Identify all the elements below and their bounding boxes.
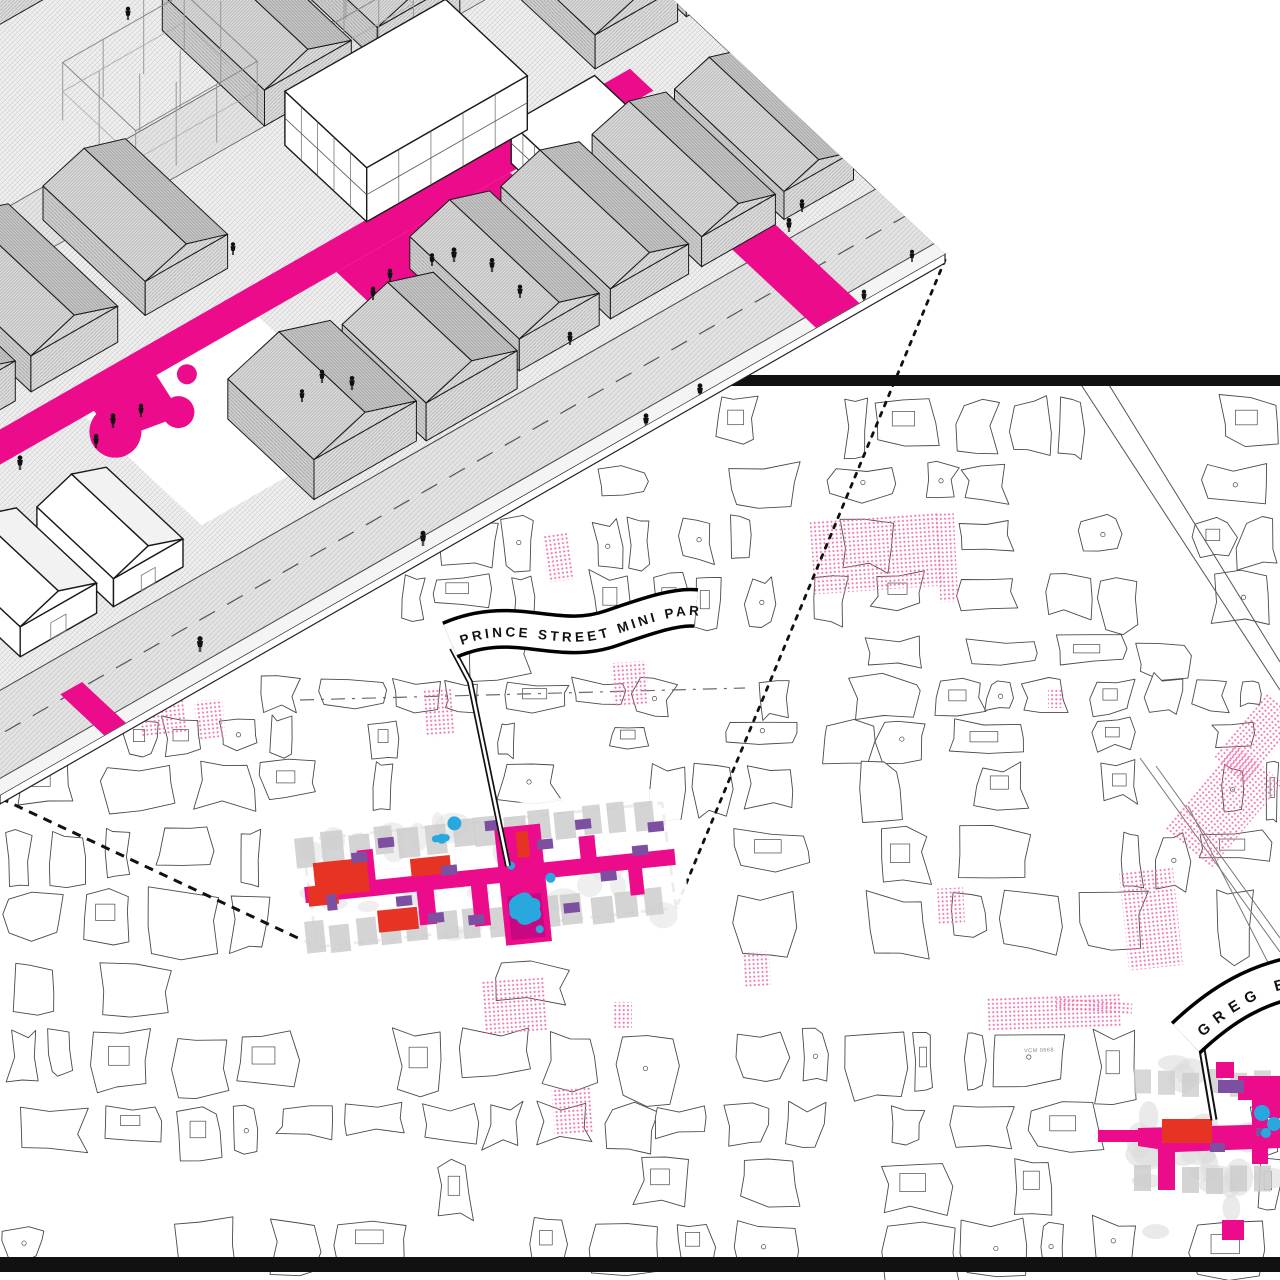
map-micro-label: VCM 0668 [1024,1047,1054,1054]
diagram-canvas: PRINCE STREET MINI PARK GREG BRO VCM 066… [0,0,1280,1280]
urban-diagram: PRINCE STREET MINI PARK GREG BRO VCM 066… [0,0,1280,1280]
